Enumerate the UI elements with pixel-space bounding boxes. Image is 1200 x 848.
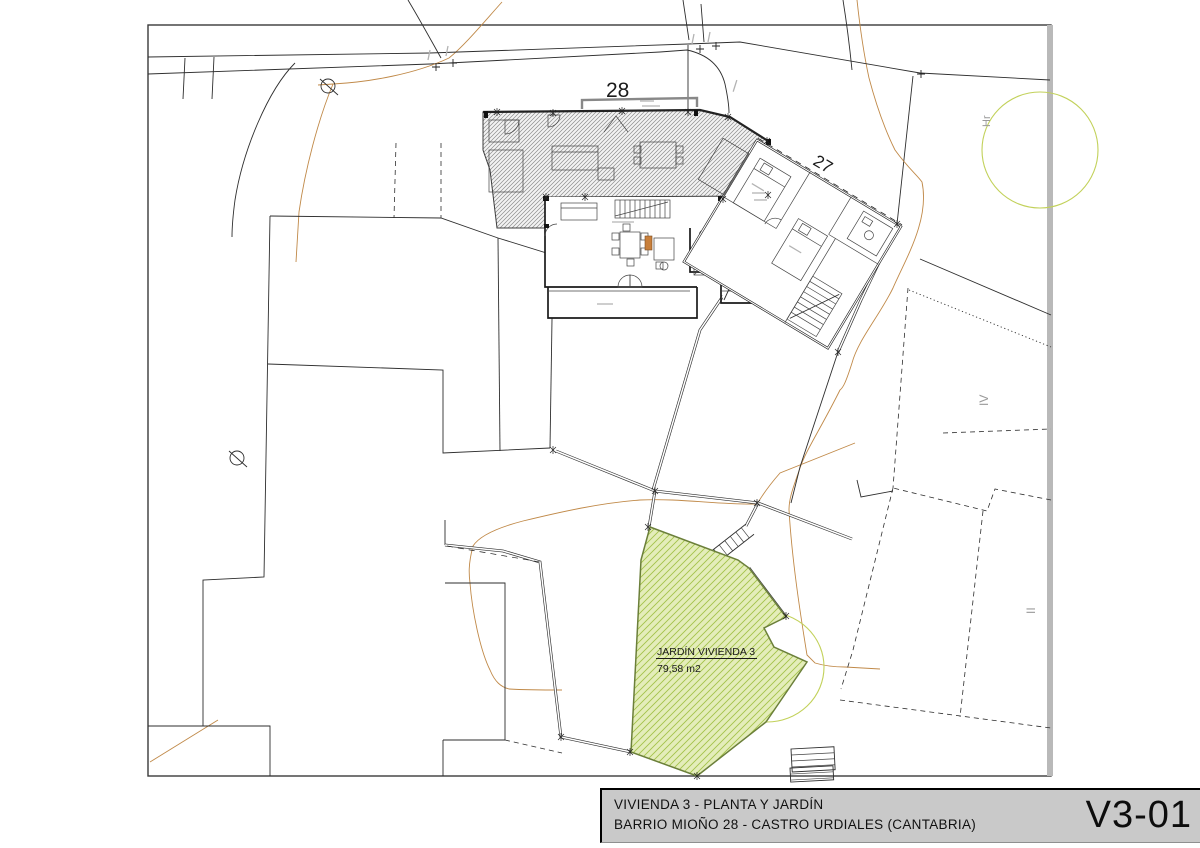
- parcel-iv-label: IV: [977, 395, 991, 406]
- plot-28-bracket: [582, 98, 697, 109]
- top-margin-lines: [408, 0, 869, 78]
- left-parcel-outline: [148, 143, 553, 776]
- site-plan-drawing: 28 27 Hr IV II JARDÍN VIVIENDA 3 79,58 m…: [0, 0, 1200, 848]
- garden-name: JARDÍN VIVIENDA 3: [657, 645, 755, 658]
- drawing-sheet: 28 27 Hr IV II JARDÍN VIVIENDA 3 79,58 m…: [0, 0, 1200, 848]
- title-block: VIVIENDA 3 - PLANTA Y JARDÍN BARRIO MIOÑ…: [600, 788, 1200, 843]
- diameter-symbol-icon: [320, 79, 338, 95]
- orange-cabinet: [645, 236, 652, 250]
- drawing-subtitle: BARRIO MIOÑO 28 - CASTRO URDIALES (CANTA…: [614, 817, 976, 832]
- drawing-title: VIVIENDA 3 - PLANTA Y JARDÍN: [614, 797, 976, 812]
- sheet-number: V3-01: [1086, 794, 1192, 837]
- parcel-ii-label: II: [1024, 607, 1038, 614]
- frame-right-band: [1047, 25, 1053, 776]
- diameter-symbol-icon: [229, 451, 247, 467]
- parcel-hr-label: Hr: [981, 115, 993, 127]
- garden-area-value: 79,58 m2: [657, 663, 701, 675]
- plot-28-label: 28: [606, 79, 629, 102]
- garden-lower-steps: [789, 747, 836, 782]
